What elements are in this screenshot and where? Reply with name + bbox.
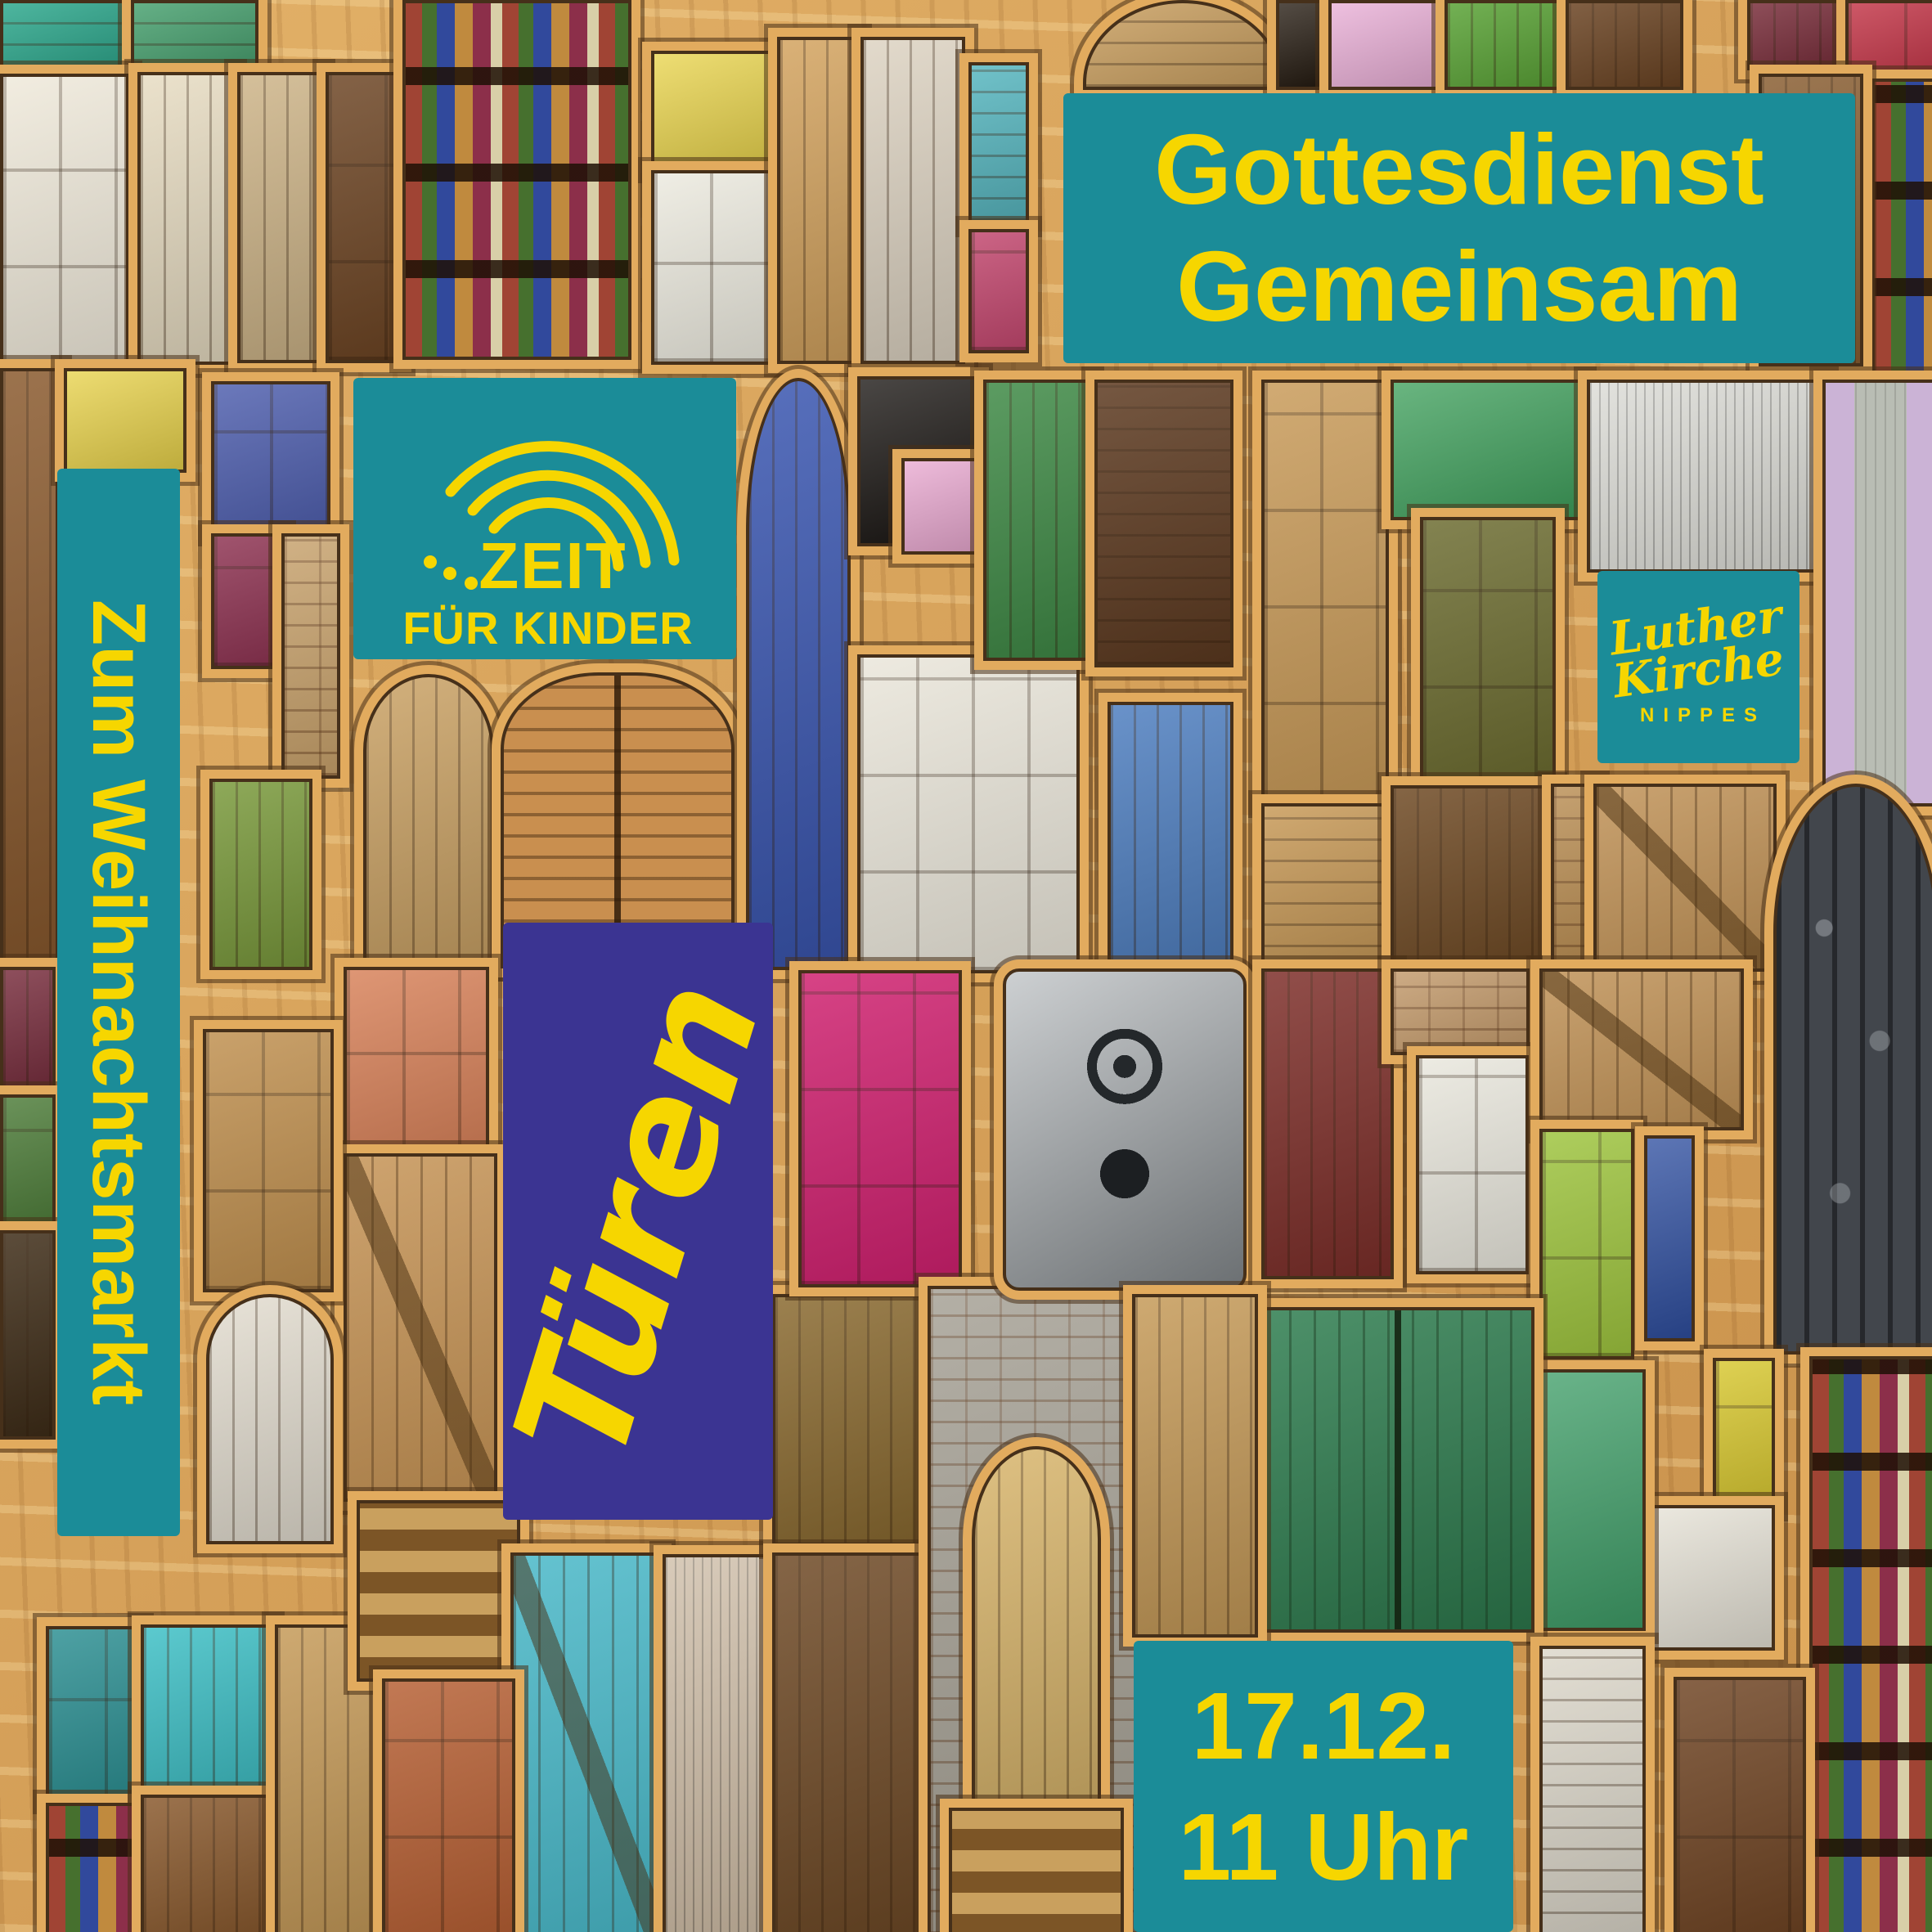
fuer-kinder-text: FÜR KINDER xyxy=(402,602,693,654)
door-planks xyxy=(141,1624,272,1793)
door-panels xyxy=(46,1626,141,1801)
door-steps xyxy=(357,1500,520,1682)
door-plain xyxy=(1276,0,1328,90)
door-planks xyxy=(972,1446,1101,1803)
lutherkirche-script: Luther Kirche xyxy=(1606,595,1790,703)
poster-canvas: Gottesdienst Gemeinsam Zum Weihnachtsmar… xyxy=(0,0,1932,1932)
door-corrugated xyxy=(1587,380,1826,573)
door-panels xyxy=(968,229,1029,353)
door-panels xyxy=(1713,1358,1775,1508)
door-slats xyxy=(1094,380,1233,667)
door-iron xyxy=(1773,784,1932,1355)
door-planks xyxy=(1132,1294,1258,1638)
door-plain xyxy=(901,458,983,555)
date-box: 17.12. 11 Uhr xyxy=(1134,1641,1513,1932)
door-panels xyxy=(326,72,402,363)
door-barn xyxy=(1593,784,1777,972)
door-planks xyxy=(141,1795,272,1932)
nippes-line: NIPPES xyxy=(1631,704,1766,727)
zeit-text: ZEIT xyxy=(479,529,627,602)
door-panels xyxy=(798,970,962,1287)
door-panels xyxy=(1420,517,1556,789)
door-panels xyxy=(382,1678,515,1932)
door-planks xyxy=(0,368,59,967)
door-planks xyxy=(1445,0,1566,90)
door-panels xyxy=(651,170,779,365)
door-safe xyxy=(1003,968,1247,1291)
door-books xyxy=(1871,79,1932,378)
door-bricks xyxy=(281,533,340,779)
door-panels xyxy=(344,967,489,1155)
door-curtain xyxy=(1822,380,1932,806)
headline-line2: Gemeinsam xyxy=(1176,228,1742,345)
rainbow-dots xyxy=(424,555,478,590)
door-slats xyxy=(131,0,258,70)
door-planks xyxy=(0,1230,56,1440)
door-barn xyxy=(510,1552,663,1932)
door-bricks xyxy=(1391,968,1530,1055)
door-panels xyxy=(1416,1055,1529,1274)
door-panels xyxy=(211,381,330,533)
door-planks xyxy=(206,1294,334,1544)
left-banner: Zum Weihnachtsmarkt xyxy=(57,469,180,1536)
door-planks xyxy=(1108,702,1233,973)
door-slats xyxy=(968,62,1029,224)
door-bricks xyxy=(1551,784,1597,972)
door-steps xyxy=(949,1808,1124,1932)
door-books xyxy=(402,0,631,360)
door-planks xyxy=(0,967,56,1090)
date-line: 17.12. xyxy=(1192,1665,1456,1786)
door-panels xyxy=(0,1094,56,1232)
door-planks xyxy=(1747,0,1844,70)
door-planks xyxy=(746,378,851,970)
door-corrugated xyxy=(663,1554,775,1932)
door-planks xyxy=(1261,968,1394,1279)
door-plain xyxy=(1539,1369,1646,1631)
door-panels xyxy=(1845,0,1932,79)
door-panels xyxy=(1674,1677,1806,1932)
headline-line1: Gottesdienst xyxy=(1154,111,1764,228)
door-plain xyxy=(1644,1135,1695,1341)
door-planks xyxy=(1566,0,1683,90)
theme-text: Türen xyxy=(480,961,796,1482)
door-planks xyxy=(237,72,322,363)
door-books xyxy=(1809,1356,1932,1932)
door-slats xyxy=(1261,803,1387,972)
rainbow-icon: ZEIT FÜR KINDER xyxy=(358,377,731,660)
door-books xyxy=(46,1803,141,1932)
door-planks xyxy=(772,1294,931,1546)
door-planks xyxy=(772,1552,931,1932)
door-planks xyxy=(983,380,1091,661)
door-slats xyxy=(1083,0,1283,90)
time-line: 11 Uhr xyxy=(1179,1786,1469,1907)
door-barn xyxy=(344,1153,497,1502)
left-banner-text: Zum Weihnachtsmarkt xyxy=(57,469,180,1536)
door-panels xyxy=(1539,1129,1634,1359)
lutherkirche-logo: Luther Kirche NIPPES xyxy=(1597,571,1799,763)
door-plain xyxy=(1391,380,1584,520)
door-slats xyxy=(0,0,128,70)
zeit-fuer-kinder-logo: ZEIT FÜR KINDER xyxy=(353,378,736,659)
door-planks xyxy=(137,72,234,365)
door-planks xyxy=(363,674,494,968)
door-planks xyxy=(209,779,312,970)
door-planks xyxy=(1391,785,1554,972)
door-panels xyxy=(1261,380,1389,805)
door-plain xyxy=(1644,1505,1775,1651)
door-panels xyxy=(0,74,129,368)
door-plain xyxy=(1328,0,1443,90)
headline-banner: Gottesdienst Gemeinsam xyxy=(1063,93,1855,363)
door-planks xyxy=(860,37,965,364)
door-plain xyxy=(64,368,186,473)
door-planks xyxy=(777,37,859,364)
door-panels xyxy=(203,1029,334,1292)
door-double xyxy=(1261,1307,1534,1633)
door-slats xyxy=(1539,1646,1646,1932)
door-barn xyxy=(1539,968,1744,1130)
door-plain xyxy=(651,51,779,170)
door-panels xyxy=(211,533,283,669)
door-panels xyxy=(857,654,1080,973)
theme-box: Türen xyxy=(503,923,773,1520)
